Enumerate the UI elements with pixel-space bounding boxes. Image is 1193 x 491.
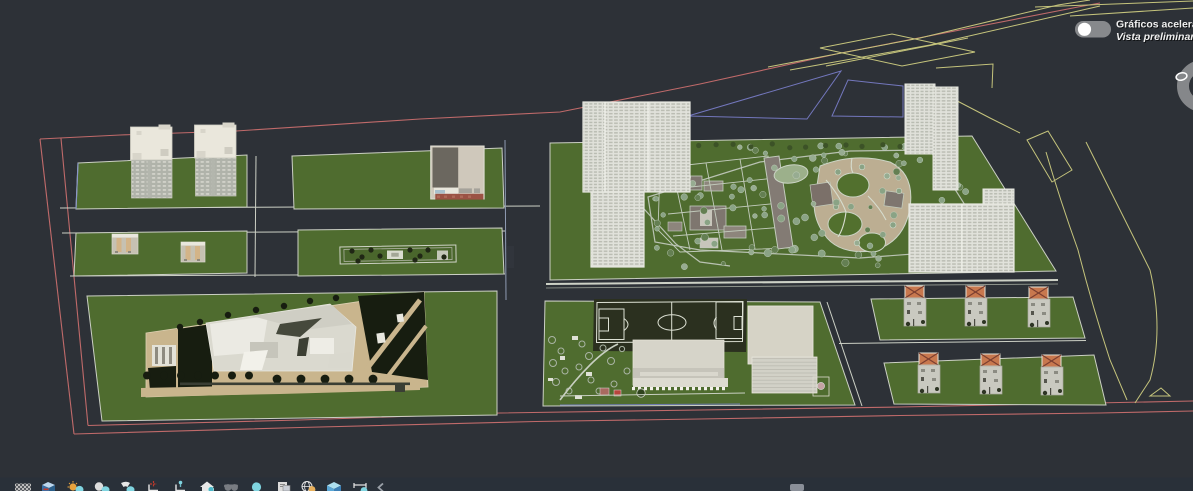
svg-text:Gráficos acelera: Gráficos acelera: [1116, 19, 1193, 31]
svg-text:Vista preliminar: Vista preliminar: [1116, 31, 1193, 43]
